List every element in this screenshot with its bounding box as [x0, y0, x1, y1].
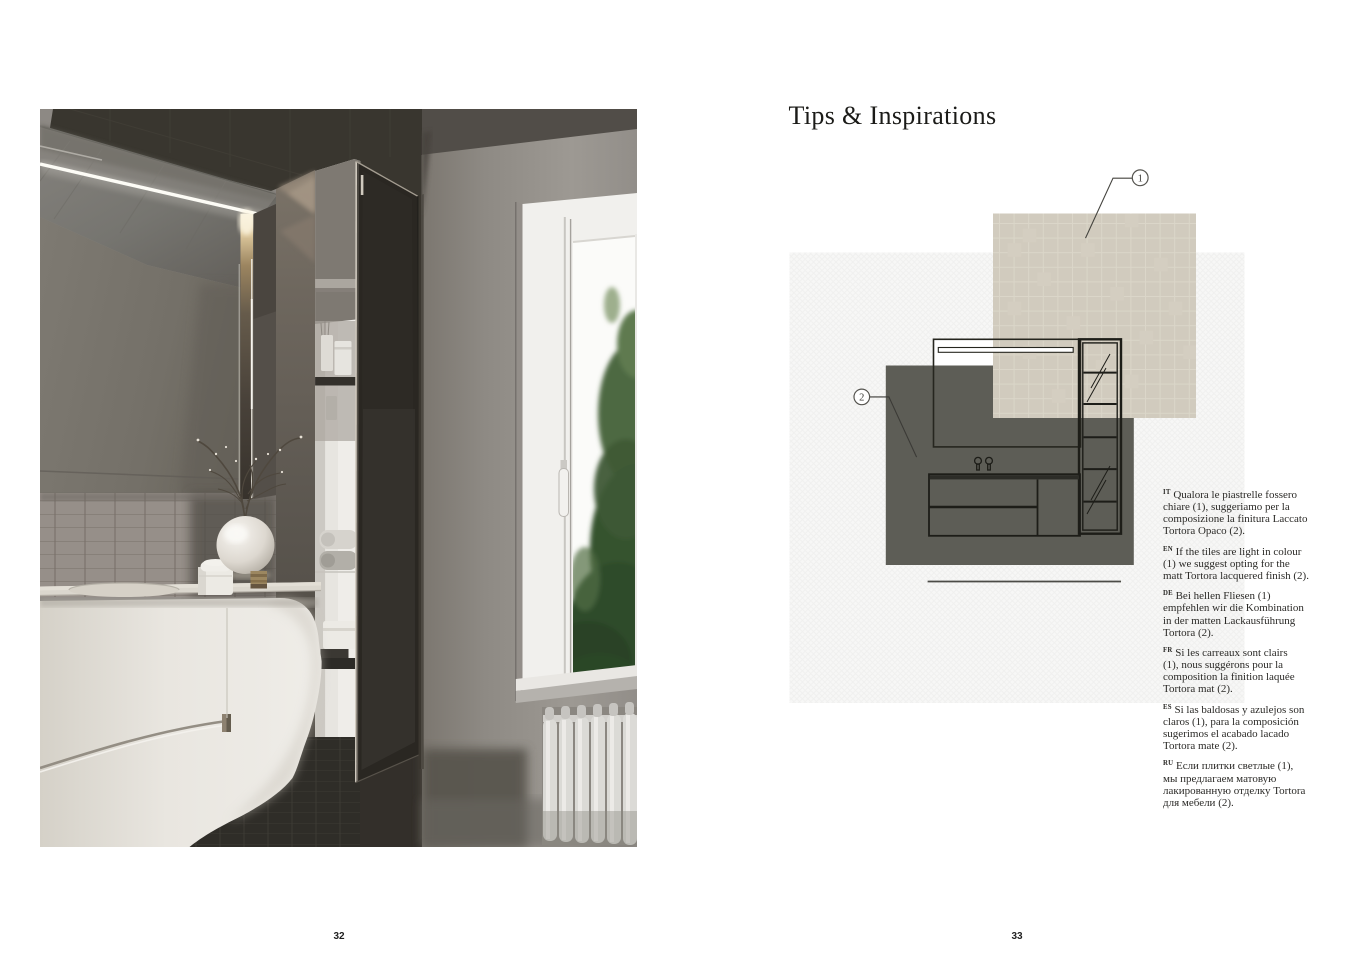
svg-text:2: 2	[859, 393, 864, 404]
svg-text:1: 1	[1138, 174, 1143, 185]
